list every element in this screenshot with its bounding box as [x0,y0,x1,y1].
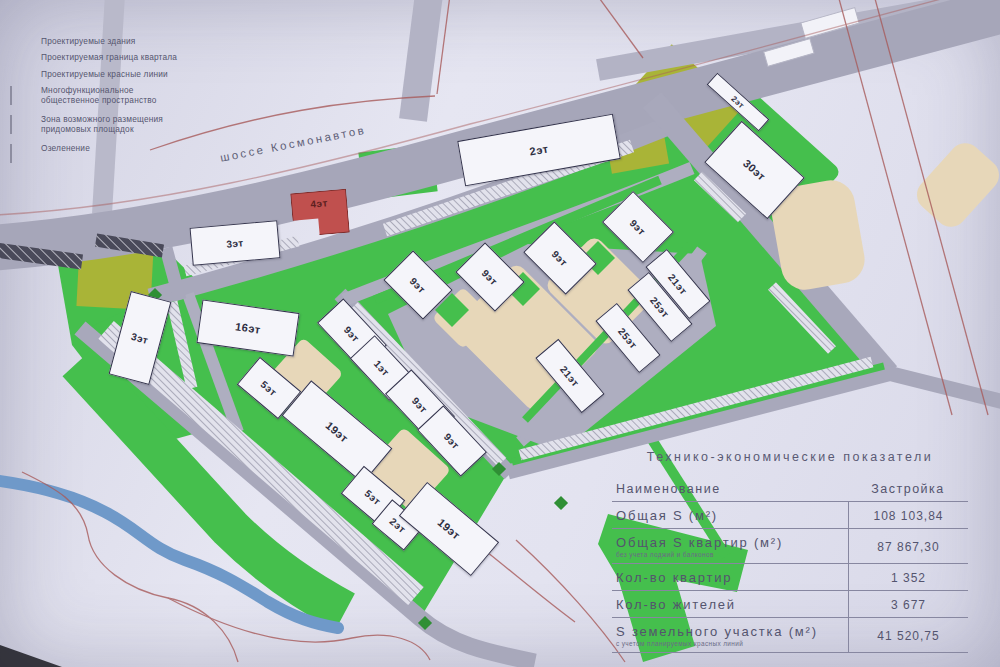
tep-grid: Наименование Застройка Общая S (м²) 108 … [612,476,968,653]
tep-row-value: 1 352 [848,564,968,591]
road-top-center-vertical [413,0,429,120]
tep-row-value: 3 677 [848,591,968,618]
legend-item: Проектируемые здания [10,36,225,46]
legend-item-label: Проектируемые здания [41,36,136,46]
tep-row-name: Кол-во жителей [612,591,848,618]
tep-table: Технико-экономические показатели Наимено… [612,450,968,653]
legend-item: Проектируемые красные линии [10,69,225,79]
legend-item-label: Проектируемая граница квартала [41,52,177,62]
legend-item: Зона возможного размещения придомовых пл… [10,114,225,135]
photo-corner-shadow [0,645,62,667]
legend-item-label: Проектируемые красные линии [41,69,168,79]
tep-col-value: Застройка [848,476,968,502]
legend-beige-swatch [10,116,34,134]
tep-row-name: S земельного участка (м²)с учетом планир… [612,618,848,653]
tep-row-note: без учета лоджий и балконов [616,551,844,558]
legend-item: Многофункциональное общественное простра… [10,85,225,106]
tree-marker-3 [554,496,568,510]
legend-olive-swatch [10,87,34,105]
yard-zone-far-right [910,137,1000,234]
legend-item: Проектируемая граница квартала [10,52,225,62]
legend: Проектируемые здания Проектируемая грани… [10,36,225,171]
legend-green-swatch [10,145,34,163]
tep-col-name: Наименование [612,476,848,502]
legend-item-label: Многофункциональное общественное простра… [41,85,191,106]
tep-row-name: Общая S квартир (м²)без учета лоджий и б… [612,529,848,564]
legend-item: Озеленение [10,143,225,163]
tep-title: Технико-экономические показатели [612,450,968,464]
tep-row-value: 87 867,30 [848,529,968,564]
tep-row-value: 108 103,84 [848,502,968,529]
tep-row-name: Кол-во квартир [612,564,848,591]
masterplan-slide: шоссе Космонавтов 3эт 4эт 2эт 2эт 30эт 3… [0,0,1000,667]
red-line-top-1 [597,0,643,58]
tep-row-name: Общая S (м²) [612,502,848,529]
legend-item-label: Озеленение [41,143,90,153]
tep-row-value: 41 520,75 [848,618,968,653]
tep-row-note: с учетом планируемых красных линий [616,640,844,647]
building-3et-north: 3эт [190,220,281,266]
legend-item-label: Зона возможного размещения придомовых пл… [41,114,191,135]
